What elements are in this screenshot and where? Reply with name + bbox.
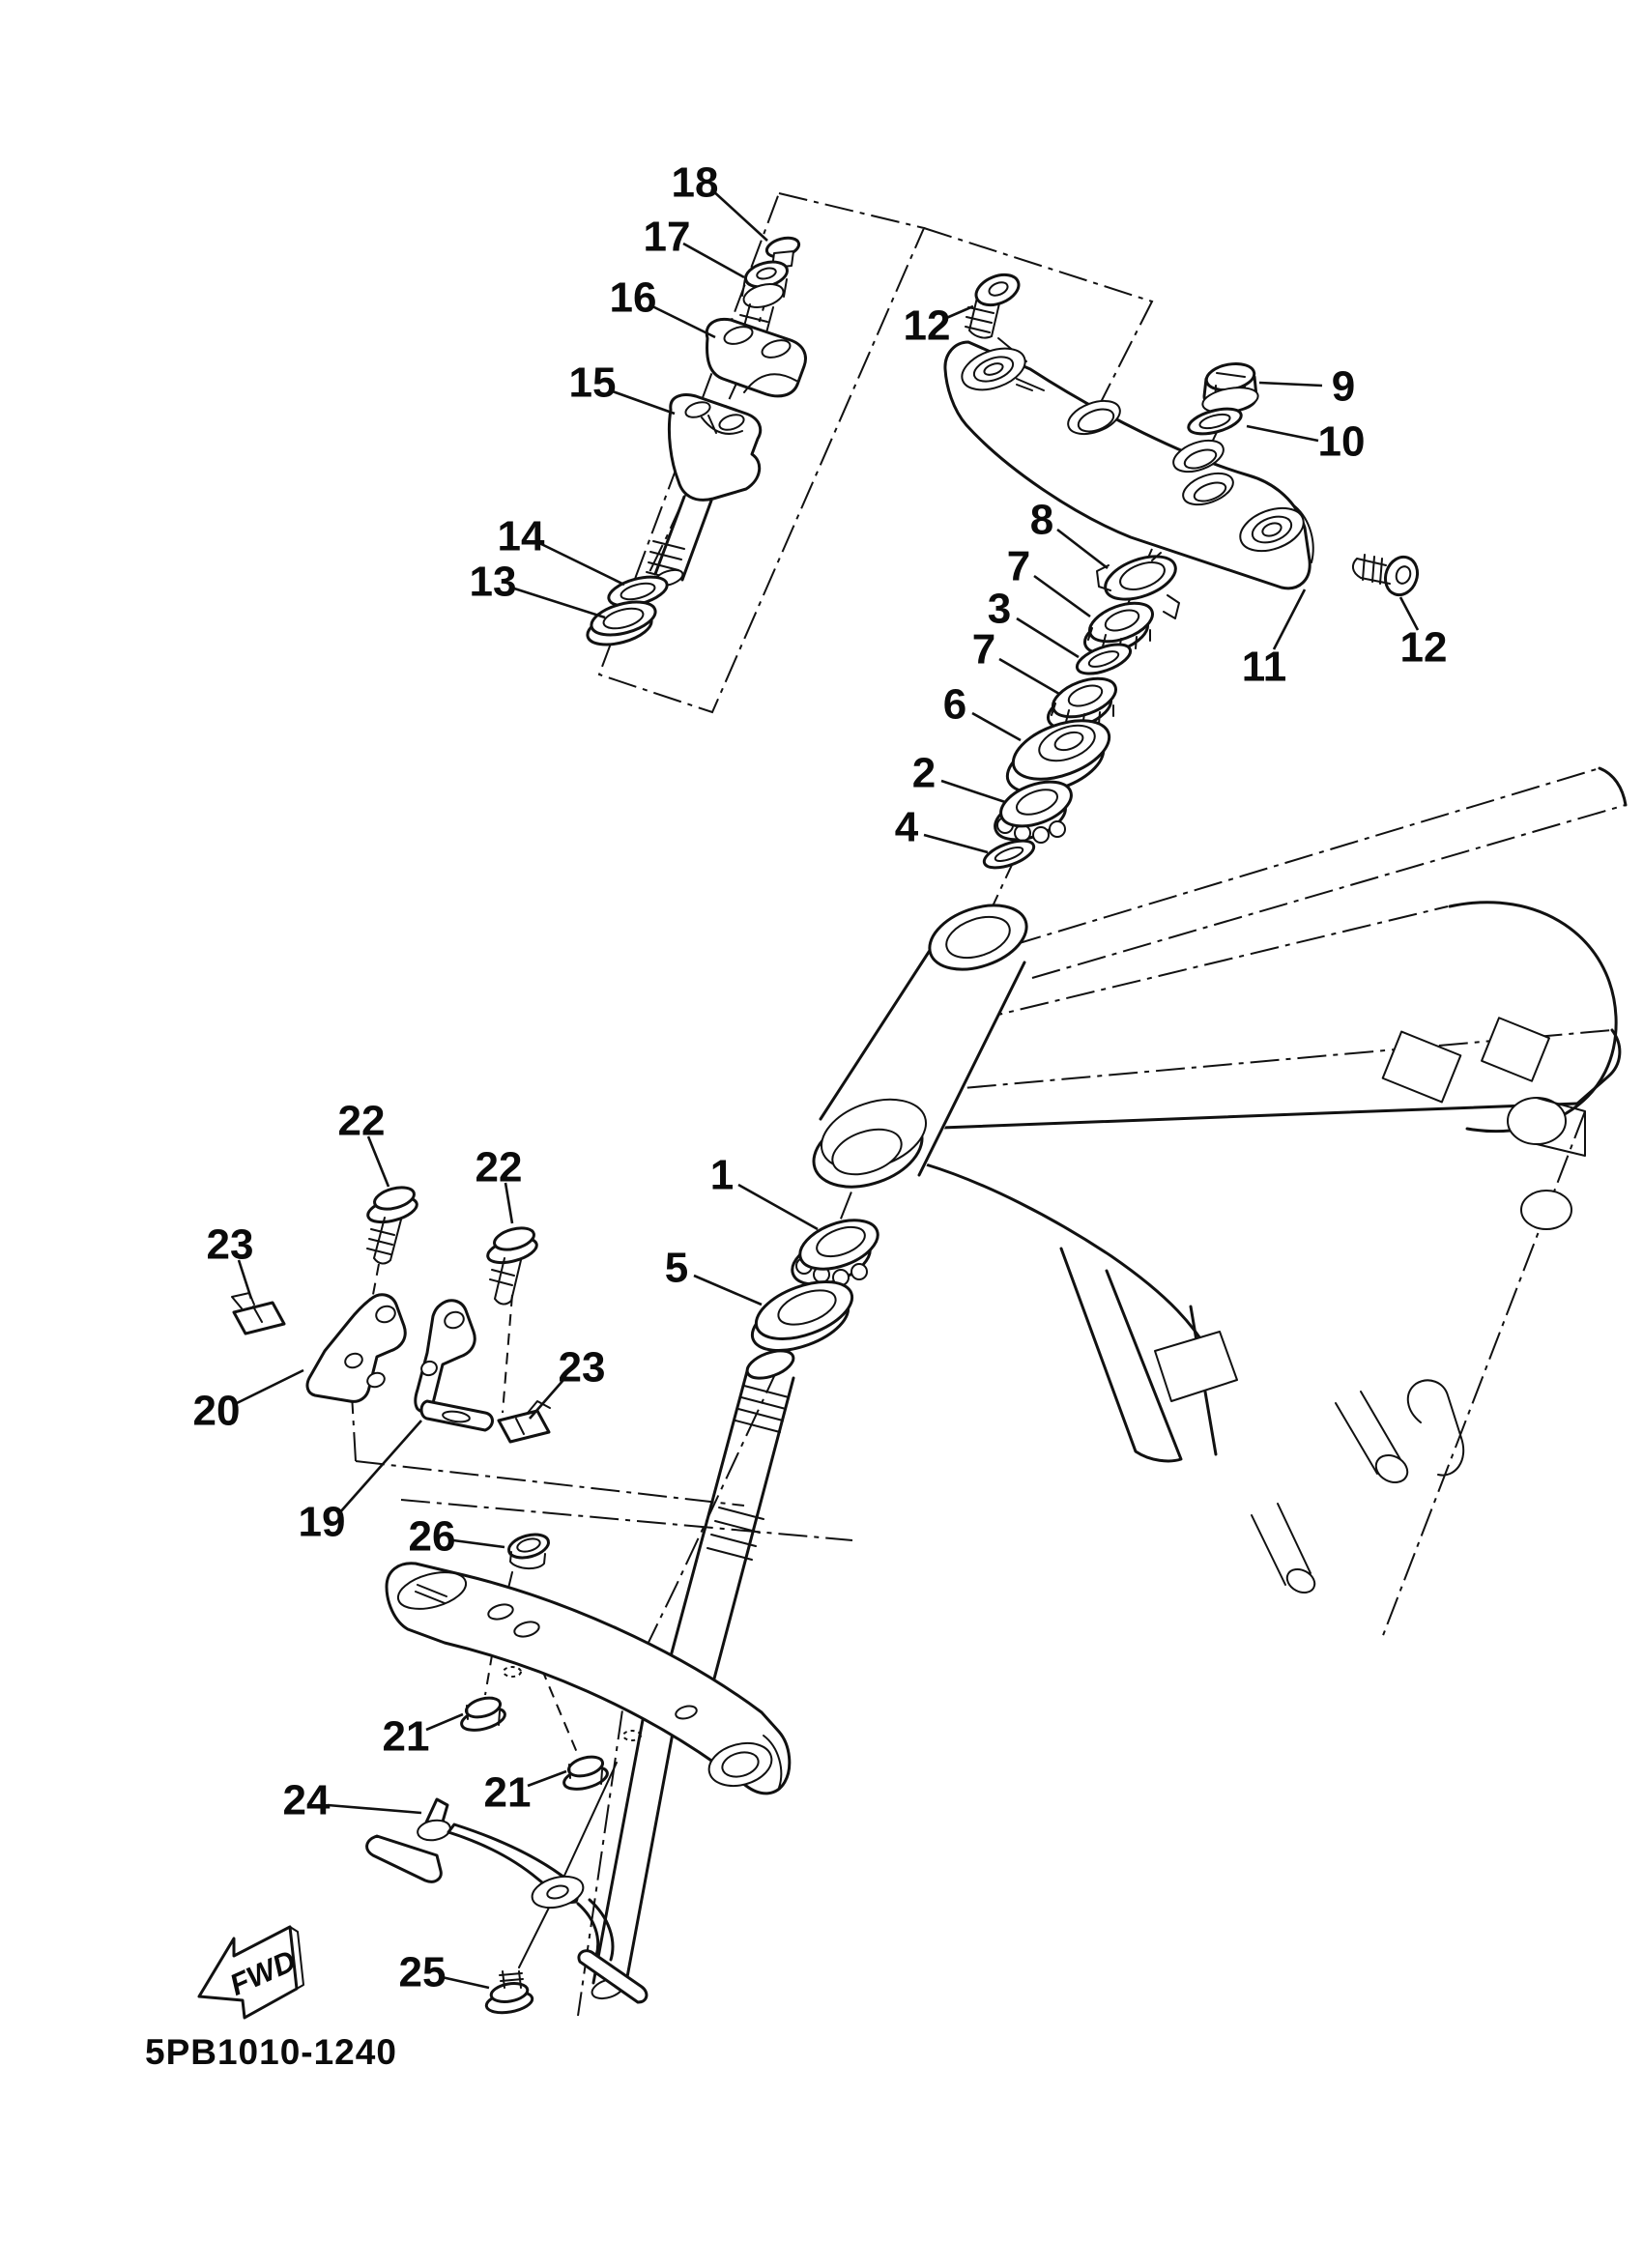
callout-18: 18 (672, 159, 719, 207)
diagram-canvas: FWD 5PB1010-1240 12345677891011121213141… (0, 0, 1643, 2268)
callout-10: 10 (1318, 418, 1366, 466)
bracket-box-line-1 (356, 1461, 744, 1506)
frame-small-box (1155, 1332, 1237, 1401)
leader-line-7 (1034, 576, 1090, 617)
holder-15-body (669, 395, 760, 501)
bearing-2-ball-3 (1033, 827, 1049, 843)
frame-lower-beam-lower (916, 1104, 1577, 1129)
callout-22: 22 (338, 1098, 386, 1145)
callout-12: 12 (1400, 624, 1448, 672)
callout-25: 25 (399, 1949, 447, 1996)
frame-rear-loop (1450, 903, 1616, 1132)
callout-23: 23 (207, 1221, 254, 1269)
frame-boss-2 (1521, 1191, 1571, 1229)
bearing-1-ball-4 (851, 1264, 867, 1279)
side-brackets-group (232, 1184, 550, 1442)
holder-16-body (706, 319, 805, 395)
callout-24: 24 (283, 1777, 331, 1824)
callout-7: 7 (972, 626, 995, 674)
leader-line-17 (683, 244, 744, 277)
frame (804, 768, 1626, 1638)
callout-6: 6 (943, 681, 966, 729)
leader-line-10 (1247, 426, 1318, 441)
callout-21: 21 (484, 1769, 532, 1817)
leader-line-21 (426, 1714, 463, 1730)
bearing-2-ball-2 (1015, 825, 1030, 841)
callout-8: 8 (1030, 497, 1053, 544)
callout-26: 26 (409, 1513, 456, 1561)
frame-gusset-edge (926, 1164, 1220, 1372)
frame-top-tube-lower (1032, 805, 1626, 978)
frame-boss-1 (1508, 1098, 1566, 1144)
bolt22b-axis (503, 1295, 512, 1413)
bolt-22a-shaft (367, 1218, 401, 1264)
frame-mid-tube (974, 906, 1448, 1020)
frame-top-tube-upper (1013, 768, 1600, 945)
bearing-2-ball-4 (1050, 821, 1065, 837)
bracket-box-line-2 (401, 1500, 852, 1540)
leader-line-6 (972, 713, 1021, 740)
leader-line-25 (442, 1977, 489, 1988)
callout-5: 5 (665, 1245, 688, 1292)
leader-line-26 (453, 1540, 504, 1547)
leader-line-2 (941, 781, 1005, 802)
frame-peg-2-cap (1283, 1565, 1319, 1597)
frame-tab-2 (1482, 1018, 1549, 1080)
leader-line-24 (328, 1805, 421, 1813)
callout-14: 14 (498, 513, 545, 560)
stem-upper-tube (663, 1371, 793, 1697)
frame-top-tube-end (1600, 768, 1626, 805)
leader-line-14 (539, 543, 624, 585)
callout-23: 23 (559, 1344, 606, 1392)
callout-15: 15 (569, 359, 617, 407)
callout-9: 9 (1332, 363, 1355, 411)
fwd-arrow: FWD (199, 1927, 303, 2018)
callout-16: 16 (610, 274, 657, 322)
parts-diagram-svg: FWD 5PB1010-1240 12345677891011121213141… (0, 0, 1643, 2268)
callout-13: 13 (470, 559, 517, 606)
leader-line-3 (1017, 618, 1079, 657)
leader-line-1 (738, 1185, 818, 1229)
frame-lower-right-edge (1382, 1111, 1585, 1638)
leader-line-13 (511, 588, 605, 617)
stem-mid-threads (707, 1507, 764, 1560)
leader-line-15 (610, 390, 675, 414)
callout-1: 1 (710, 1152, 734, 1199)
clip-nut-23b (499, 1411, 549, 1442)
leader-line-16 (650, 305, 715, 337)
leader-line-4 (924, 835, 988, 852)
guide-24-left-blade (367, 1836, 442, 1881)
callout-19: 19 (299, 1499, 346, 1546)
callout-21: 21 (383, 1713, 430, 1761)
leader-line-21 (528, 1771, 566, 1786)
callout-17: 17 (644, 214, 691, 261)
callout-12: 12 (904, 302, 951, 350)
stem-lower-tube (593, 1705, 677, 1993)
callout-20: 20 (193, 1388, 241, 1435)
leader-line-11 (1274, 589, 1305, 649)
leader-line-7 (999, 659, 1059, 694)
callout-2: 2 (912, 750, 936, 797)
stem-top-end (743, 1345, 796, 1384)
callout-22: 22 (476, 1144, 523, 1191)
leader-line-5 (694, 1276, 762, 1305)
callout-7: 7 (1007, 543, 1030, 590)
guide-24-ring1 (417, 1818, 452, 1843)
frame-peg-1-cap (1371, 1450, 1412, 1488)
leader-line-8 (1057, 530, 1108, 568)
holder-15-stud (655, 497, 711, 580)
lower-bearing-group (745, 1211, 884, 1362)
bolt-22b-shaft (490, 1258, 521, 1305)
under-bracket-hidden-hole-1 (504, 1667, 521, 1677)
callout-11: 11 (1242, 644, 1287, 691)
leader-line-9 (1259, 383, 1322, 386)
leader-line-20 (237, 1370, 303, 1403)
callout-4: 4 (895, 804, 919, 851)
leader-line-18 (711, 189, 767, 241)
callout-labels: 1234567789101112121314151617181920212122… (193, 159, 1448, 1996)
frame-hook (1408, 1380, 1463, 1475)
diagram-code: 5PB1010-1240 (145, 2032, 397, 2072)
frame-tab-1 (1383, 1032, 1461, 1103)
